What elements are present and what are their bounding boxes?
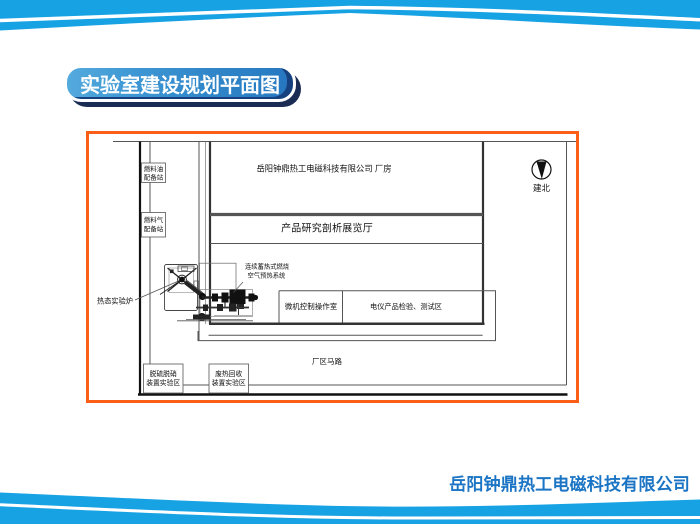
svg-text:配备站: 配备站 <box>144 173 164 182</box>
svg-text:装置实验区: 装置实验区 <box>212 378 246 387</box>
svg-text:空气预热系统: 空气预热系统 <box>248 271 286 280</box>
svg-text:脱硫脱硝: 脱硫脱硝 <box>150 369 177 378</box>
svg-text:装置实验区: 装置实验区 <box>146 378 180 387</box>
svg-text:厂区马路: 厂区马路 <box>312 356 342 366</box>
svg-text:电仪产品检验、测试区: 电仪产品检验、测试区 <box>370 302 442 311</box>
svg-text:微机控制操作室: 微机控制操作室 <box>285 301 338 311</box>
svg-text:岳阳钟鼎热工电磁科技有限公司 厂房: 岳阳钟鼎热工电磁科技有限公司 厂房 <box>256 164 391 174</box>
svg-text:配备站: 配备站 <box>144 224 164 233</box>
svg-text:废热回收: 废热回收 <box>215 369 242 378</box>
svg-text:热态实验炉: 热态实验炉 <box>97 297 133 306</box>
svg-text:燃料油: 燃料油 <box>144 164 164 173</box>
svg-text:燃料气: 燃料气 <box>144 215 164 224</box>
svg-text:连续蓄热式燃烧: 连续蓄热式燃烧 <box>245 262 290 271</box>
svg-text:建北: 建北 <box>533 183 551 193</box>
svg-text:产品研究剖析展览厅: 产品研究剖析展览厅 <box>281 222 373 235</box>
